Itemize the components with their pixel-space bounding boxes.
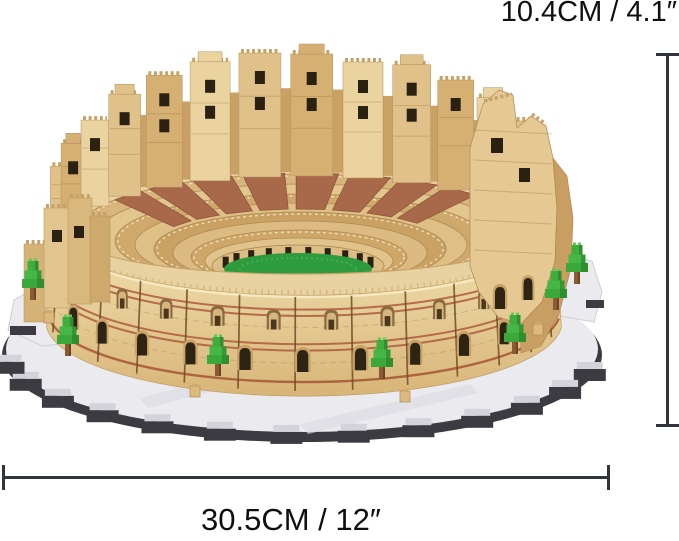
width-dimension-line — [3, 476, 610, 479]
width-dimension-label: 30.5CM / 12″ — [201, 502, 381, 538]
product-image-canvas: 10.4CM / 4.1″ 30.5CM / 12″ — [0, 0, 679, 541]
width-dimension-cap-left — [2, 465, 5, 490]
height-dimension-cap-top — [656, 53, 679, 56]
height-dimension-cap-bottom — [656, 424, 679, 427]
colosseum-model-image — [0, 0, 679, 541]
height-dimension-line — [666, 55, 669, 425]
width-dimension-cap-right — [607, 465, 610, 490]
height-dimension-label: 10.4CM / 4.1″ — [501, 0, 677, 29]
